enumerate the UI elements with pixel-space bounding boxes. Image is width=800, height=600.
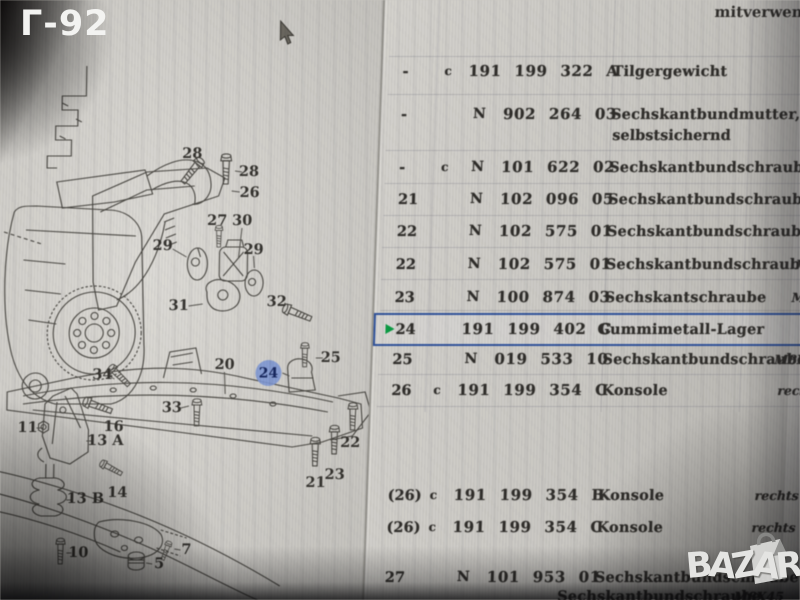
part-name-line2: selbstsichernd	[612, 127, 731, 144]
diagram-callout-24-selected[interactable]: 24	[259, 366, 279, 382]
part-remark: recht	[777, 382, 800, 399]
table-row[interactable]: 25N019 533 10SechskantbundschraubeM8X	[372, 351, 800, 373]
table-row[interactable]: 22N102 575 01SechskantbundschraubeM	[375, 256, 800, 278]
photo-label: Г-92	[20, 4, 110, 44]
diagram-callout-29[interactable]: 29	[152, 237, 172, 254]
diagram-callout-32[interactable]: 32	[266, 293, 286, 310]
part-number: 191 199 322 A	[468, 63, 619, 80]
part-name: Sechskantbundmutter,	[611, 106, 800, 123]
diagram-callout-22[interactable]: 22	[340, 434, 360, 451]
parts-table-panel: mitverwen -c191 199 322 ATilgergewicht-N…	[362, 0, 800, 600]
part-number: 102 575 01	[497, 256, 612, 273]
table-row[interactable]: -cN101 622 02Sechskantbundschraube	[379, 159, 800, 181]
watermark-text: BAZAR	[686, 546, 799, 586]
part-position: 24	[395, 321, 416, 338]
diagram-callout-14[interactable]: 14	[107, 484, 127, 501]
mouse-cursor-icon	[280, 21, 293, 44]
part-position: 25	[392, 351, 413, 368]
part-number-prefix: N	[470, 191, 483, 208]
part-number: 902 264 03	[503, 106, 618, 123]
diagram-callout-7[interactable]: 7	[181, 541, 191, 558]
part-number: 101 953 01	[487, 569, 602, 586]
part-position: -	[401, 106, 408, 123]
exploded-parts-diagram: 28282627302929313220253334222321111613 A…	[0, 0, 384, 600]
part-flag: c	[429, 487, 437, 504]
part-position: 26	[391, 382, 412, 399]
diagram-callout-29[interactable]: 29	[243, 241, 263, 258]
part-remark: rechts	[754, 487, 799, 504]
part-number: 102 096 05	[500, 191, 615, 208]
table-row[interactable]: 21N102 096 05Sechskantbundschraube	[378, 191, 800, 213]
part-name: Konsole	[597, 487, 664, 504]
part-number: 191 199 354 C	[457, 382, 608, 399]
part-remark: M	[795, 256, 800, 273]
table-row[interactable]: (26)c191 199 354 BKonsolerechts	[367, 487, 800, 509]
diagram-callout-21[interactable]: 21	[305, 474, 325, 491]
part-number-prefix: N	[471, 159, 484, 176]
part-position: 27	[385, 569, 406, 586]
table-row[interactable]: -c191 199 322 ATilgergewicht	[382, 63, 800, 85]
part-position: (26)	[386, 519, 420, 536]
part-number: 191 199 354 B	[453, 487, 605, 504]
part-flag: c	[441, 159, 449, 176]
table-row[interactable]: 22N102 575 01Sechskantbundschraube	[376, 223, 800, 245]
part-position: 23	[394, 289, 415, 306]
part-number: 101 622 02	[501, 159, 616, 176]
part-name: Konsole	[596, 519, 663, 536]
diagram-callout-34[interactable]: 34	[92, 366, 112, 383]
diagram-callout-25[interactable]: 25	[321, 349, 341, 366]
table-row[interactable]: 23N100 874 03SechskantschraubeM	[374, 289, 800, 311]
part-name: Sechskantbundschraube	[608, 191, 800, 208]
diagram-callout-5[interactable]: 5	[154, 555, 164, 572]
part-name: Sechskantschraube	[604, 289, 766, 306]
part-position: -	[399, 159, 406, 176]
part-flag: c	[444, 63, 452, 80]
part-name: Sechskantbundschraube	[607, 223, 800, 240]
part-number-prefix: N	[457, 569, 470, 586]
diagram-callout-23[interactable]: 23	[324, 466, 344, 483]
diagram-callout-31[interactable]: 31	[168, 297, 188, 314]
part-number-prefix: N	[464, 351, 477, 368]
part-name: Sechskantbundschraube	[609, 159, 800, 176]
diagram-callout-28[interactable]: 28	[239, 163, 259, 180]
part-number: 191 199 402 C	[461, 321, 612, 338]
part-position: (26)	[387, 487, 421, 504]
part-name: Sechskantbundschraube	[605, 256, 800, 273]
part-remark: M8X	[774, 351, 800, 368]
diagram-callout-10[interactable]: 10	[68, 544, 88, 561]
part-number-prefix: N	[466, 289, 479, 306]
part-name: Gummimetall-Lager	[597, 321, 764, 338]
table-row[interactable]: -N902 264 03Sechskantbundmutter,selbstsi…	[381, 106, 800, 128]
part-position: 21	[398, 191, 419, 208]
part-name: Sechskantbundschraube	[602, 351, 800, 368]
watermark-letter: R	[774, 545, 800, 587]
part-flag: c	[433, 382, 441, 399]
part-number: 191 199 354 C	[452, 519, 603, 536]
bazar-watermark: BAZAR	[686, 538, 800, 598]
part-name: Tilgergewicht	[612, 63, 727, 80]
diagram-callout-28[interactable]: 28	[182, 145, 202, 162]
part-position: 22	[397, 223, 418, 240]
table-row-selected[interactable]: 24191 199 402 CGummimetall-Lager	[373, 313, 800, 346]
part-number: 100 874 03	[496, 289, 611, 306]
diagram-callout-20[interactable]: 20	[214, 356, 234, 373]
part-number: 102 575 01	[499, 223, 614, 240]
screen-photo: 28282627302929313220253334222321111613 A…	[0, 0, 800, 600]
diagram-callout-11[interactable]: 11	[17, 419, 37, 436]
diagram-callout-13A[interactable]: 13 A	[87, 432, 125, 449]
table-row[interactable]: 26c191 199 354 CKonsolerecht	[371, 382, 800, 404]
diagram-panel: 28282627302929313220253334222321111613 A…	[0, 0, 384, 600]
selected-row-arrow-icon	[385, 324, 394, 334]
previous-row-remark: mitverwen	[714, 3, 800, 21]
diagram-callout-26[interactable]: 26	[239, 184, 259, 201]
part-number-prefix: N	[467, 256, 480, 273]
part-number-prefix: N	[469, 223, 482, 240]
diagram-callout-33[interactable]: 33	[162, 399, 182, 416]
part-position: -	[402, 63, 409, 80]
diagram-callout-13B[interactable]: 13 B	[66, 490, 104, 507]
part-name: Konsole	[601, 382, 668, 399]
part-number: 019 533 10	[494, 351, 609, 368]
part-position: 22	[395, 256, 416, 273]
part-flag: c	[428, 519, 436, 536]
diagram-callout-27[interactable]: 27	[207, 212, 227, 229]
part-number-prefix: N	[473, 106, 486, 123]
diagram-callout-30[interactable]: 30	[232, 212, 252, 229]
part-remark: M	[791, 289, 800, 306]
